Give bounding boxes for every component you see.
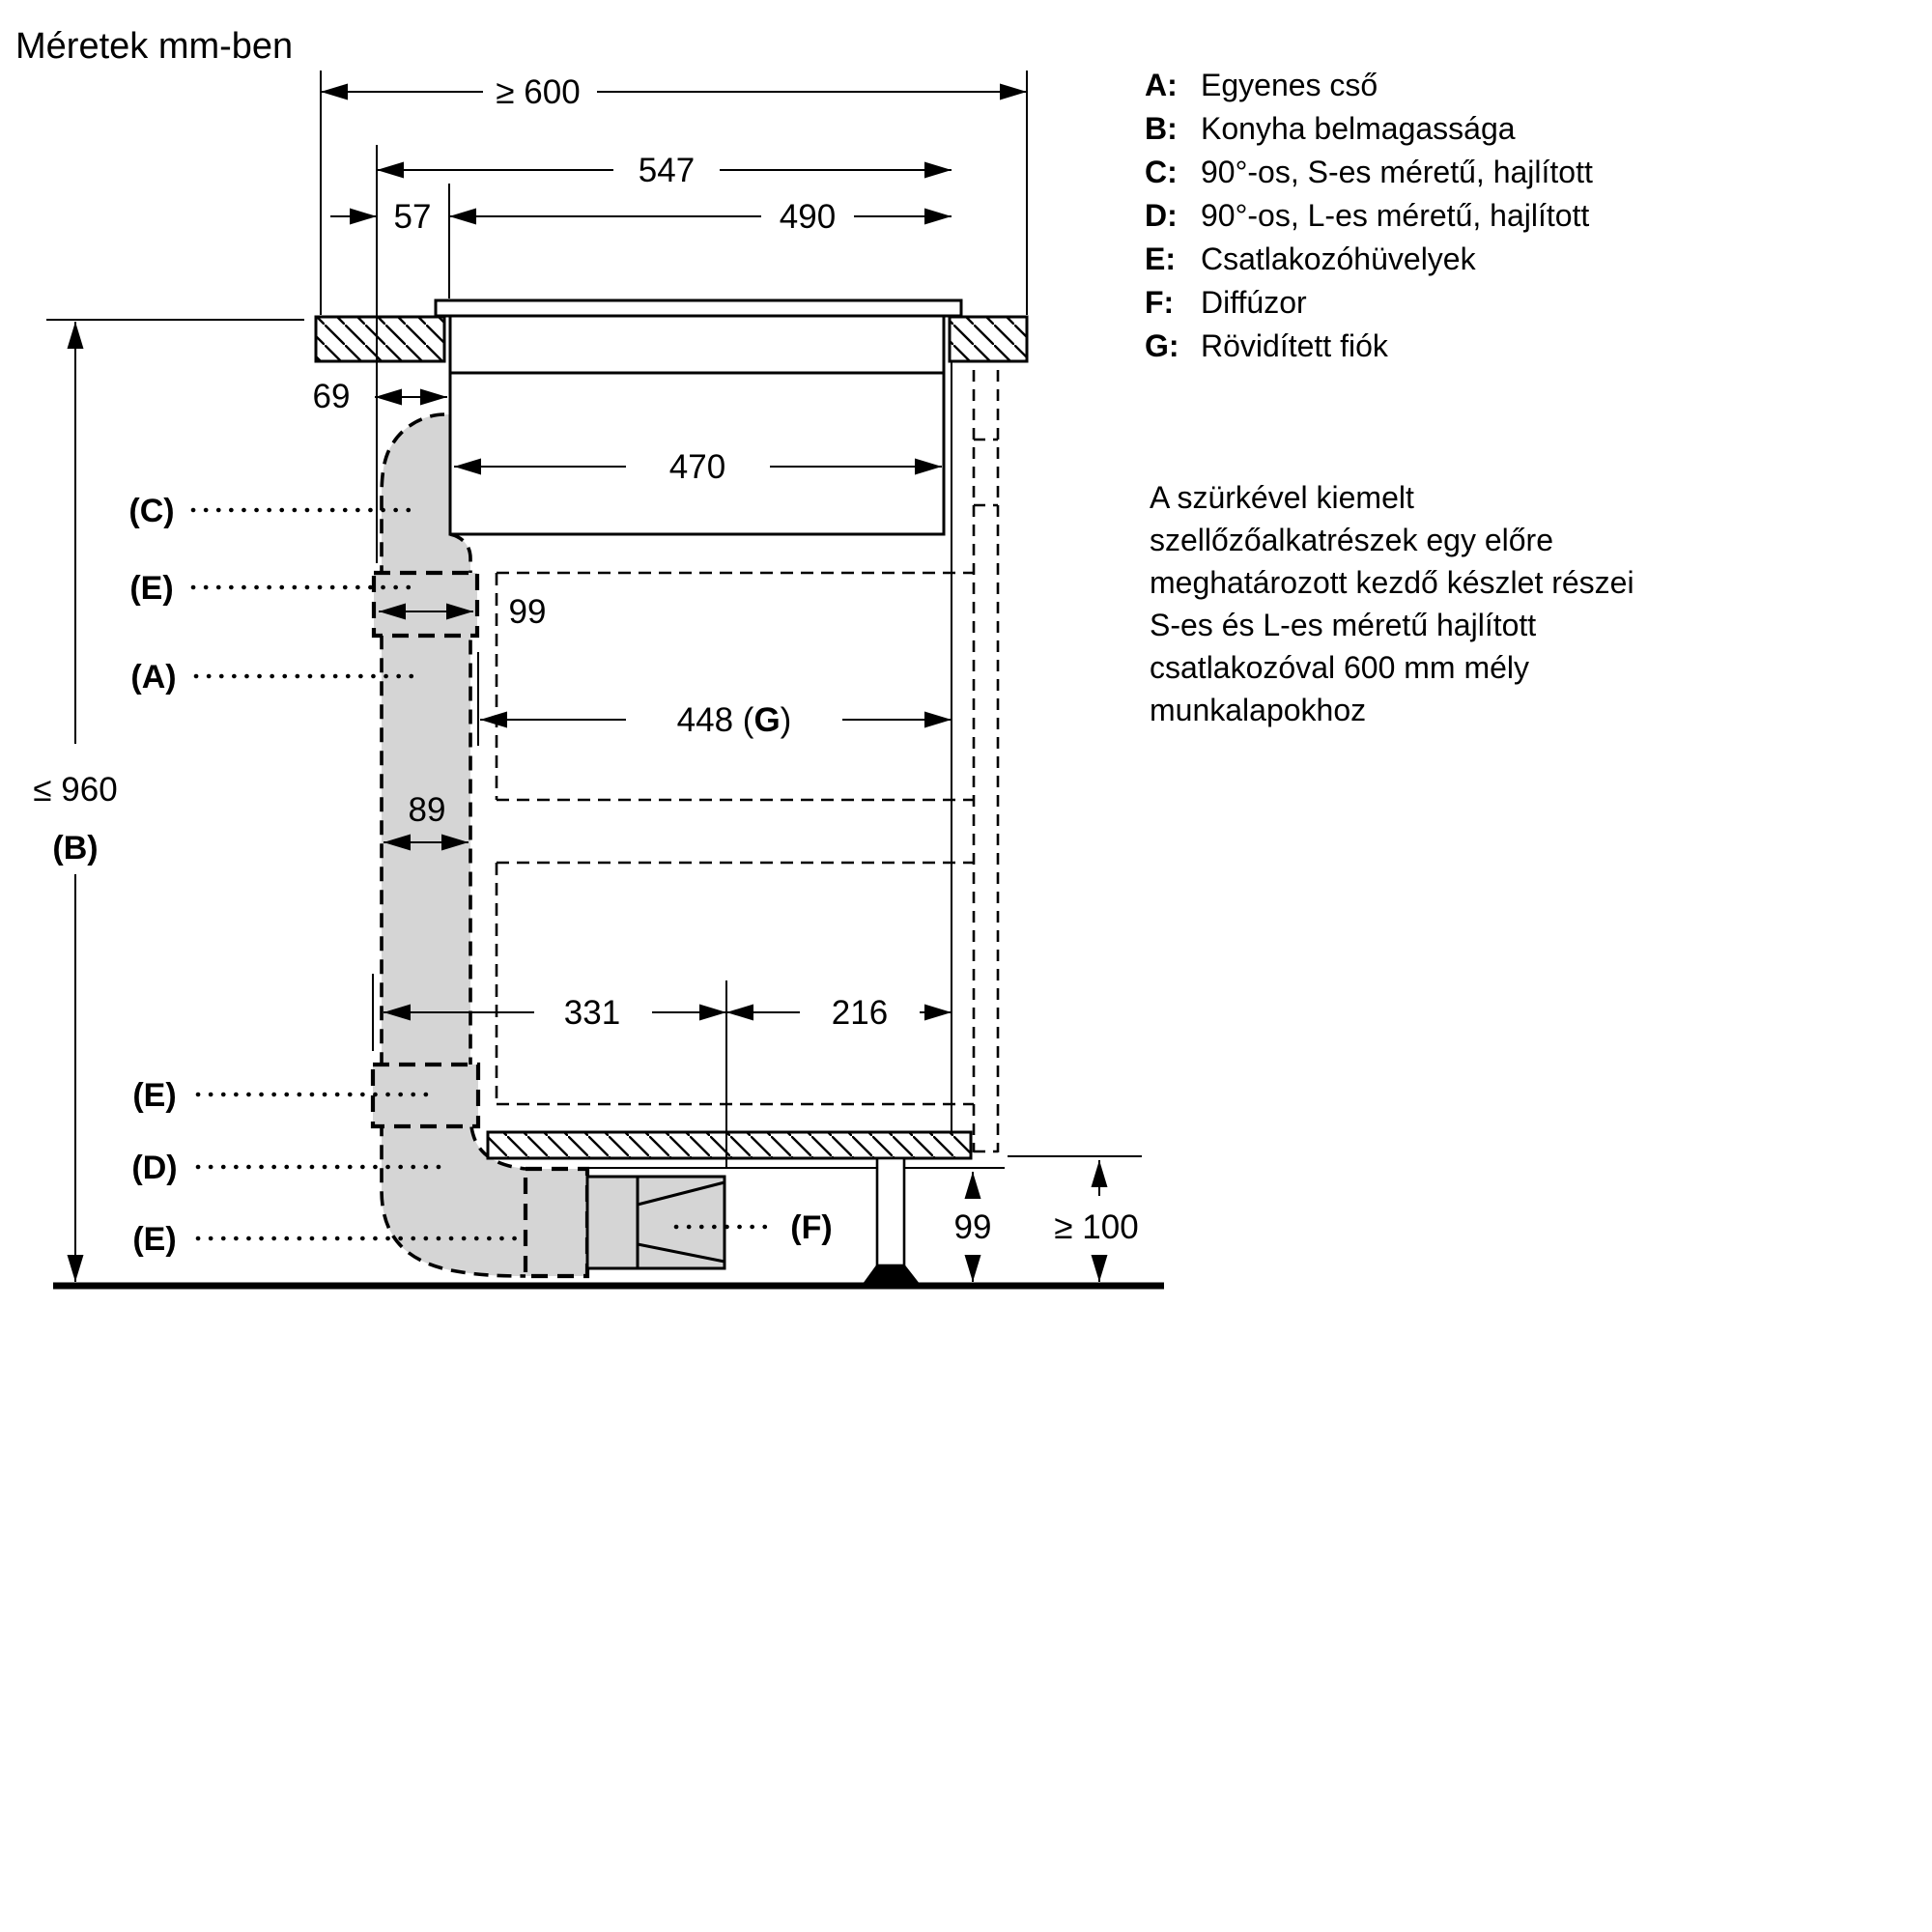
drawer-box-g <box>497 573 974 800</box>
diffuser-body <box>587 1177 724 1268</box>
hob-body <box>450 316 944 534</box>
legend-key-f: F: <box>1145 285 1174 320</box>
diffuser <box>587 1177 724 1268</box>
note-line-5: csatlakozóval 600 mm mély <box>1150 650 1529 685</box>
dim-960-label: ≤ 960 <box>33 771 117 809</box>
note-line-3: meghatározott kezdő készlet részei <box>1150 565 1634 600</box>
installation-diagram: Méretek mm-ben ≥ 600 547 57 490 69 470 9… <box>0 0 1932 1932</box>
legend-key-e: E: <box>1145 241 1176 276</box>
worktop-left-section <box>316 317 444 361</box>
legend-label-d: 90°-os, L-es méretű, hajlított <box>1201 198 1589 233</box>
dim-331-label: 331 <box>564 994 620 1032</box>
callout-d: (D) <box>131 1150 177 1186</box>
dim-57-label: 57 <box>394 198 432 236</box>
cabinet-bottom-shelf <box>488 1132 971 1158</box>
dim-547-label: 547 <box>639 152 695 189</box>
sleeve-horizontal-e <box>526 1169 587 1276</box>
page-title: Méretek mm-ben <box>15 26 293 67</box>
rear-duct-channel <box>974 370 998 1152</box>
note-line-1: A szürkével kiemelt <box>1150 480 1414 515</box>
legend-row-b: B:Konyha belmagassága <box>1145 111 1516 146</box>
note-line-2: szellőzőalkatrészek egy előre <box>1150 523 1553 557</box>
legend-label-f: Diffúzor <box>1201 285 1307 320</box>
legend-row-c: C:90°-os, S-es méretű, hajlított <box>1145 155 1593 189</box>
legend-row-a: A:Egyenes cső <box>1145 68 1378 102</box>
worktop-right-section <box>950 317 1027 361</box>
dim-490-label: 490 <box>780 198 836 236</box>
sleeve-upper-e <box>374 573 477 636</box>
note-line-4: S-es és L-es méretű hajlított <box>1150 608 1536 642</box>
legend-row-f: F:Diffúzor <box>1145 285 1307 320</box>
callout-e2: (E) <box>132 1077 176 1114</box>
legend-label-g: Rövidített fiók <box>1201 328 1389 363</box>
dimension-diagram-page: Méretek mm-ben ≥ 600 547 57 490 69 470 9… <box>0 0 1932 1932</box>
legend-label-c: 90°-os, S-es méretű, hajlított <box>1201 155 1593 189</box>
callout-e3: (E) <box>132 1221 176 1258</box>
legend-label-b: Konyha belmagassága <box>1201 111 1516 146</box>
legend-row-g: G:Rövidített fiók <box>1145 328 1389 363</box>
legend-key-c: C: <box>1145 155 1178 189</box>
dim-448-pre: 448 ( <box>677 701 754 739</box>
leg-foot <box>865 1265 918 1283</box>
dim-69-label: 69 <box>313 378 351 415</box>
legend-key-g: G: <box>1145 328 1179 363</box>
dim-b-label: (B) <box>52 830 98 867</box>
note-line-6: munkalapokhoz <box>1150 693 1366 727</box>
dim-100-label: ≥ 100 <box>1054 1208 1138 1246</box>
cabinet-leg <box>865 1158 918 1283</box>
callout-a: (A) <box>130 659 176 696</box>
note-paragraph: A szürkével kiemelt szellőzőalkatrészek … <box>1150 480 1634 727</box>
hob-unit <box>436 300 961 534</box>
lower-cabinet-box <box>497 863 974 1104</box>
legend-label-a: Egyenes cső <box>1201 68 1378 102</box>
legend-key-d: D: <box>1145 198 1178 233</box>
dim-89-label: 89 <box>409 791 446 829</box>
legend: A:Egyenes cső B:Konyha belmagassága C:90… <box>1145 68 1593 363</box>
dim-448-label: 448 (G) <box>677 701 792 739</box>
legend-row-d: D:90°-os, L-es méretű, hajlított <box>1145 198 1589 233</box>
part-leaders <box>193 510 769 1238</box>
legend-key-b: B: <box>1145 111 1178 146</box>
leg-shaft <box>877 1158 904 1265</box>
legend-label-e: Csatlakozóhüvelyek <box>1201 241 1477 276</box>
dim-99s-label: 99 <box>509 593 547 631</box>
dim-470-label: 470 <box>669 448 725 486</box>
dim-448-post: ) <box>781 701 792 739</box>
callout-e1: (E) <box>129 570 173 607</box>
dim-448-letter: G <box>753 701 780 739</box>
dim-600-label: ≥ 600 <box>496 73 580 111</box>
legend-key-a: A: <box>1145 68 1178 102</box>
hob-glass-plate <box>436 300 961 316</box>
callout-f: (F) <box>790 1209 832 1246</box>
callout-c: (C) <box>128 493 174 529</box>
dim-99b-label: 99 <box>954 1208 992 1246</box>
legend-row-e: E:Csatlakozóhüvelyek <box>1145 241 1477 276</box>
dim-216-label: 216 <box>832 994 888 1032</box>
